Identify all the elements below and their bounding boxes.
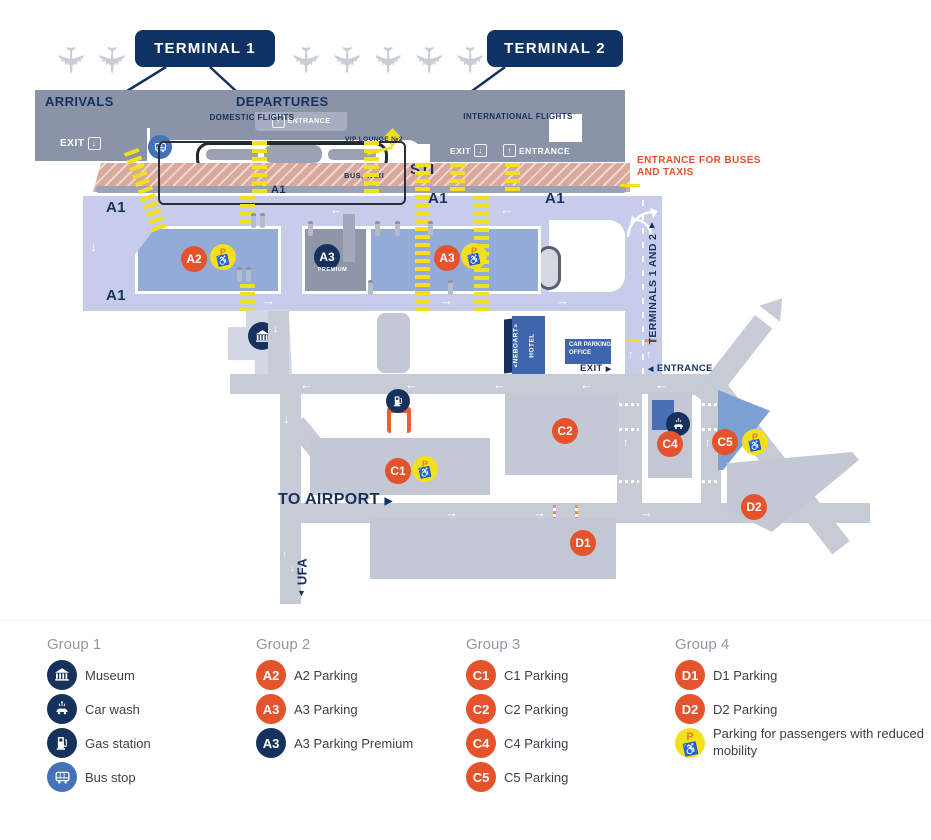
road-arrow: ← bbox=[330, 203, 343, 216]
d2-parking-marker: D2 bbox=[741, 494, 767, 520]
barrier-post bbox=[260, 213, 265, 228]
terminal-2-badge: TERMINAL 2 bbox=[487, 30, 623, 67]
hotel-word-label: HOTEL bbox=[529, 318, 538, 374]
road-arrow: ← bbox=[405, 378, 418, 391]
a2-parking-marker: A2 bbox=[181, 246, 207, 272]
legend-item-label: A2 Parking bbox=[294, 660, 358, 690]
road-arrow: ← bbox=[655, 378, 668, 391]
to-airport-text: TO AIRPORT bbox=[278, 491, 380, 508]
gatehouse bbox=[343, 214, 355, 262]
bus-stop-icon bbox=[47, 762, 77, 792]
barrier-post bbox=[395, 221, 400, 236]
down-arrow-icon: ↓ bbox=[88, 137, 101, 150]
airport-parking-map-page: ✈ ✈ ✈ ✈ ✈ ✈ ✈ TERMINAL 1 TERMINAL 2 ARRI… bbox=[0, 0, 931, 840]
a1-label: A1 bbox=[106, 199, 126, 216]
museum-access-road bbox=[268, 311, 289, 375]
left-triangle-icon: ◀ bbox=[648, 366, 654, 373]
road-arrow: ↑ bbox=[628, 350, 634, 361]
legend-group-3-title: Group 3 bbox=[466, 636, 520, 653]
wheelchair-icon: ♿ bbox=[748, 440, 762, 452]
crosswalk bbox=[415, 163, 430, 311]
legend-item-label: C2 Parking bbox=[504, 694, 568, 724]
a1-label: A1 bbox=[545, 190, 565, 207]
crosswalk bbox=[240, 284, 255, 311]
a1-label: A1 bbox=[271, 184, 286, 196]
a1-label: A1 bbox=[106, 287, 126, 304]
mid-vertical-road bbox=[617, 394, 642, 503]
exit-right-sign: EXIT ↓ bbox=[450, 144, 487, 157]
premium-label: PREMIUM bbox=[302, 267, 363, 273]
c1-parking-marker: C1 bbox=[466, 660, 496, 690]
down-triangle-icon: ▼ bbox=[297, 588, 306, 598]
road-arrow: ← bbox=[500, 203, 513, 216]
reduced-mobility-parking-marker: P ♿ bbox=[675, 728, 705, 758]
to-airport-label: TO AIRPORT ▶ bbox=[278, 491, 393, 509]
a3-parking-marker: A3 bbox=[434, 245, 460, 271]
d1-parking-marker: D1 bbox=[675, 660, 705, 690]
legend-item-label: Parking for passengers with reduced mobi… bbox=[713, 726, 931, 760]
road-arrow: → bbox=[262, 294, 275, 307]
road-arrow: ↓ bbox=[565, 246, 572, 259]
wheelchair-icon: ♿ bbox=[216, 255, 230, 267]
legend-group-1-title: Group 1 bbox=[47, 636, 101, 653]
legend-item-label: C4 Parking bbox=[504, 728, 568, 758]
toll-gate-line bbox=[627, 339, 639, 342]
terminals-1-2-label: TERMINALS 1 AND 2 bbox=[647, 233, 659, 345]
mid-building bbox=[377, 313, 410, 373]
diagonal-road-arrowhead bbox=[760, 290, 793, 322]
road-arrow: ← bbox=[493, 378, 506, 391]
right-triangle-icon: ▶ bbox=[606, 366, 612, 373]
entrance-for-buses-tick bbox=[620, 184, 640, 187]
car-parking-office: CAR PARKING OFFICE bbox=[565, 339, 611, 364]
a1-label: A1 bbox=[428, 190, 448, 207]
barrier-post bbox=[375, 221, 380, 236]
road-arrow: ↓ bbox=[283, 412, 290, 425]
road-arrow: → bbox=[640, 506, 653, 519]
exit-left-sign: EXIT ↓ bbox=[60, 137, 101, 150]
domestic-flights-label: DOMESTIC FLIGHTS bbox=[198, 113, 306, 123]
c5-parking-marker: C5 bbox=[712, 429, 738, 455]
reduced-mobility-parking-marker: P ♿ bbox=[461, 243, 487, 269]
c2-parking-marker: C2 bbox=[552, 418, 578, 444]
a2-parking-lot bbox=[135, 226, 281, 294]
barrier-post bbox=[368, 280, 373, 295]
road-arrow: ↑ bbox=[646, 350, 652, 361]
give-way-line bbox=[702, 403, 720, 406]
departures-label: DEPARTURES bbox=[236, 94, 329, 109]
entrance-right-sign: ↑ ENTRANCE bbox=[503, 144, 570, 157]
legend-divider bbox=[0, 620, 931, 621]
legend-item-label: C5 Parking bbox=[504, 762, 568, 792]
gas-station-icon bbox=[386, 389, 410, 413]
road-arrow: ↓ bbox=[273, 324, 279, 335]
legend-item-label: A3 Parking Premium bbox=[294, 728, 413, 758]
barrier-post bbox=[428, 221, 433, 236]
legend-item-label: D2 Parking bbox=[713, 694, 777, 724]
barrier-post bbox=[448, 280, 453, 295]
road-arrow: ↑ bbox=[623, 438, 629, 449]
entrance-label: ENTRANCE bbox=[519, 146, 570, 156]
crosswalk bbox=[252, 141, 267, 196]
d2-parking-marker: D2 bbox=[675, 694, 705, 724]
barrier-post bbox=[251, 213, 256, 228]
a3-parking-marker: A3 bbox=[256, 694, 286, 724]
arrivals-label: ARRIVALS bbox=[45, 94, 114, 109]
road-arrow: ← bbox=[580, 378, 593, 391]
reduced-mobility-parking-marker: P ♿ bbox=[210, 244, 236, 270]
wheelchair-icon: ♿ bbox=[418, 467, 432, 479]
down-arrow-icon: ↓ bbox=[474, 144, 487, 157]
a2-parking-marker: A2 bbox=[256, 660, 286, 690]
legend-item-label: Car wash bbox=[85, 694, 140, 724]
d1-parking-marker: D1 bbox=[570, 530, 596, 556]
car-wash-icon bbox=[47, 694, 77, 724]
exit-mid-sign: EXIT ▶ bbox=[580, 363, 612, 374]
entrance-mid-sign: ◀ ENTRANCE bbox=[648, 363, 713, 374]
entrance-label: ENTRANCE bbox=[657, 363, 713, 374]
c5-parking-marker: C5 bbox=[466, 762, 496, 792]
wheelchair-icon: ♿ bbox=[681, 741, 698, 756]
legend-item-label: Museum bbox=[85, 660, 135, 690]
c4-parking-marker: C4 bbox=[657, 431, 683, 457]
give-way-line bbox=[619, 480, 639, 483]
legend-item-label: D1 Parking bbox=[713, 660, 777, 690]
road-arrow: ↑ bbox=[282, 550, 287, 559]
crosswalk bbox=[505, 163, 520, 192]
exit-label: EXIT bbox=[450, 146, 471, 156]
museum-icon bbox=[47, 660, 77, 690]
right-triangle-icon: ▶ bbox=[385, 496, 393, 507]
international-flights-label: INTERNATIONAL FLIGHTS bbox=[463, 112, 573, 122]
gas-station-icon bbox=[47, 728, 77, 758]
barrier-post bbox=[308, 221, 313, 236]
exit-label: EXIT bbox=[580, 363, 603, 374]
legend-group-2-title: Group 2 bbox=[256, 636, 310, 653]
wheelchair-icon: ♿ bbox=[467, 254, 481, 266]
up-triangle-icon: ▲ bbox=[647, 220, 657, 231]
road-arrow: ↓ bbox=[90, 240, 97, 253]
a3-premium-parking-marker: A3 bbox=[256, 728, 286, 758]
reduced-mobility-parking-marker: P ♿ bbox=[742, 429, 768, 455]
c1-parking-marker: C1 bbox=[385, 458, 411, 484]
barrier-post bbox=[246, 267, 251, 282]
crosswalk bbox=[364, 141, 379, 196]
road-arrow: → bbox=[556, 294, 569, 307]
up-arrow-icon: ↑ bbox=[503, 144, 516, 157]
legend-item-label: Gas station bbox=[85, 728, 151, 758]
road-arrow: → bbox=[440, 294, 453, 307]
terminal-1-badge: TERMINAL 1 bbox=[135, 30, 275, 67]
entrance-for-buses-label: ENTRANCE FOR BUSES AND TAXIS bbox=[637, 155, 769, 179]
crosswalk bbox=[450, 163, 465, 192]
c4-parking-marker: C4 bbox=[466, 728, 496, 758]
barrier-post bbox=[237, 267, 242, 282]
hotel-name-label: «NEBOART» bbox=[513, 318, 522, 374]
give-way-line bbox=[619, 428, 639, 431]
give-way-line bbox=[702, 480, 720, 483]
reduced-mobility-parking-marker: P ♿ bbox=[412, 456, 438, 482]
legend-item-label: Bus stop bbox=[85, 762, 136, 792]
legend-item-label: C1 Parking bbox=[504, 660, 568, 690]
gas-station-bay bbox=[391, 413, 407, 433]
road-arrow: ← bbox=[300, 378, 313, 391]
legend-group-4-title: Group 4 bbox=[675, 636, 729, 653]
road-arrow: ↑ bbox=[705, 438, 711, 449]
legend-item-label: A3 Parking bbox=[294, 694, 358, 724]
exit-label: EXIT bbox=[60, 138, 85, 149]
give-way-line bbox=[619, 403, 639, 406]
c2-parking-marker: C2 bbox=[466, 694, 496, 724]
